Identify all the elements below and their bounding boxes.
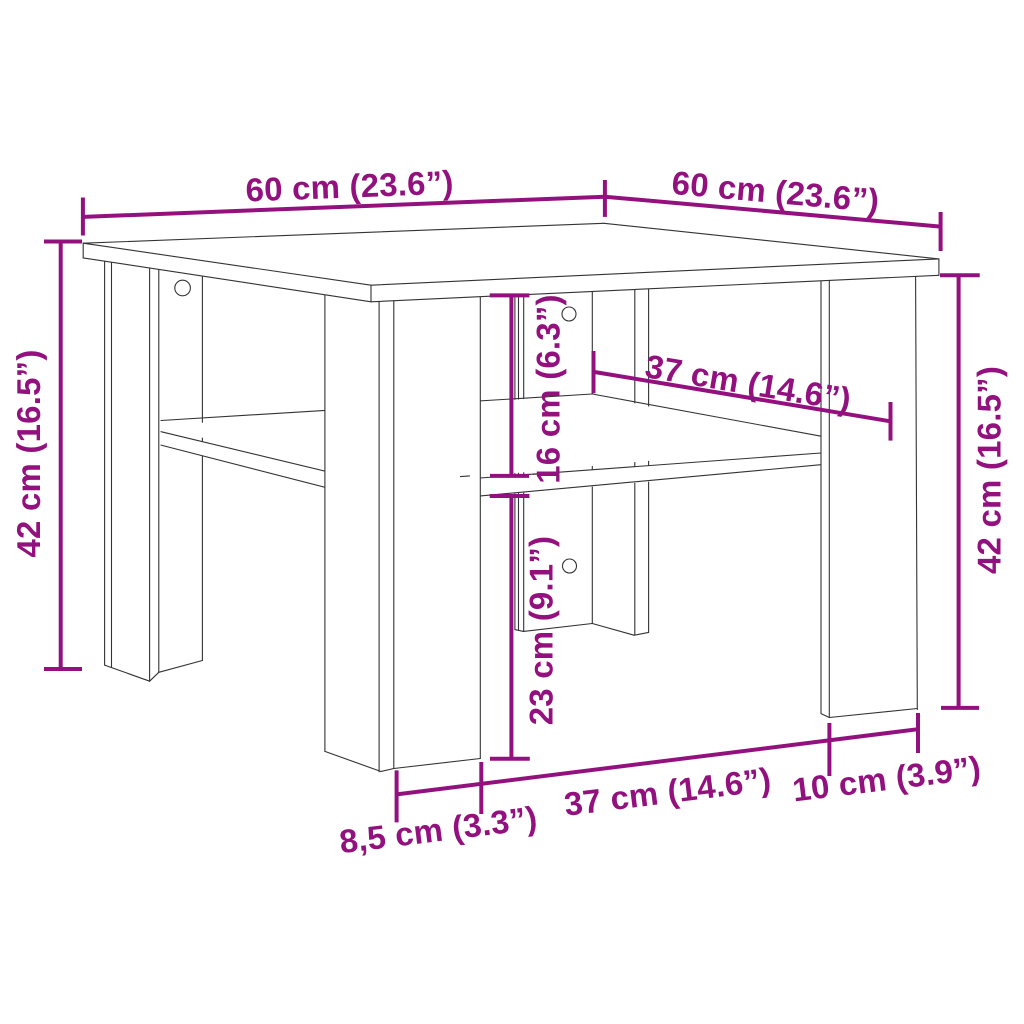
svg-text:42 cm (16.5”): 42 cm (16.5”)	[971, 366, 1008, 574]
svg-text:23 cm (9.1”): 23 cm (9.1”)	[522, 536, 559, 726]
svg-text:42 cm (16.5”): 42 cm (16.5”)	[10, 349, 47, 557]
svg-text:16 cm (6.3”): 16 cm (6.3”)	[530, 294, 567, 484]
